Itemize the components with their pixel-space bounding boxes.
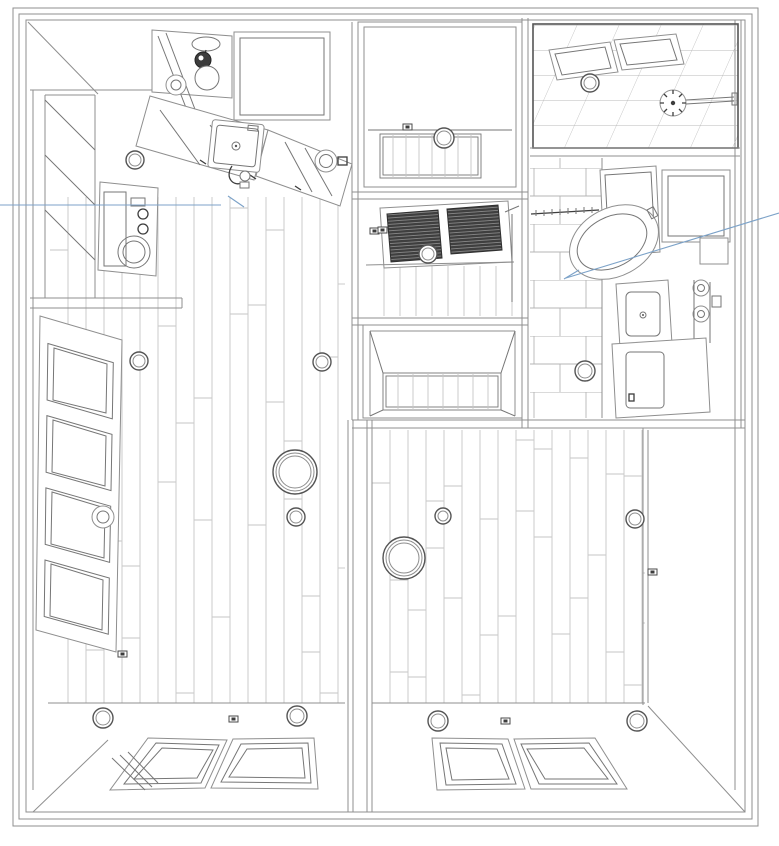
shower-ceiling-light (581, 74, 599, 92)
bedroom-switch-s (501, 718, 510, 724)
kitchen-sink (208, 119, 265, 172)
bedroom-spot-light-n (435, 508, 451, 524)
living-spot-light-se (287, 706, 307, 726)
bedroom-window-left (432, 738, 525, 790)
hall-floor (384, 266, 512, 316)
bedroom-spot-light-sw (428, 711, 448, 731)
bathroom-ceiling-light (575, 361, 595, 381)
living-switch-s (229, 716, 238, 722)
window-blind-right (447, 205, 502, 254)
living-pendant-light (273, 450, 317, 494)
kitchen-spot-light (126, 151, 144, 169)
living-window-right (211, 738, 318, 789)
bedroom-spot-light-e (626, 510, 644, 528)
hall-switch-b (378, 227, 387, 233)
kitchen-left-cabinets (45, 95, 95, 298)
living-window-left (110, 738, 227, 790)
refrigerator (234, 32, 330, 120)
closet-floor (383, 373, 501, 410)
vanity-sink (612, 280, 721, 418)
shower-ceiling-panel-right (614, 34, 684, 70)
pot (166, 75, 186, 95)
bedroom-pendant-light (383, 537, 425, 579)
bedroom-spot-light-se (627, 711, 647, 731)
living-pendant-small (287, 508, 305, 526)
entry-switch (403, 124, 412, 130)
bathroom (530, 24, 740, 418)
bedroom-door-handle (648, 569, 657, 575)
door-knob (92, 506, 114, 528)
bedroom-window-right (514, 738, 627, 789)
floor-plan-canvas (0, 0, 779, 846)
entry-strip-floor (380, 134, 481, 178)
washing-machine (98, 182, 158, 276)
bedroom (372, 428, 648, 790)
kitchen (45, 30, 352, 298)
vanity-cabinet (612, 338, 710, 418)
living-spot-light-ne (313, 353, 331, 371)
shower-area (530, 24, 740, 156)
living-door-mark (118, 651, 127, 657)
bathroom-shelf (662, 170, 730, 264)
floor-plan-drawing (0, 0, 779, 846)
entry-ceiling-light (434, 128, 454, 148)
hall-ceiling-light (419, 245, 437, 263)
living-spot-light-nw (130, 352, 148, 370)
living-spot-light-sw (93, 708, 113, 728)
vanity-faucet (693, 280, 721, 345)
panel-door (36, 316, 122, 652)
